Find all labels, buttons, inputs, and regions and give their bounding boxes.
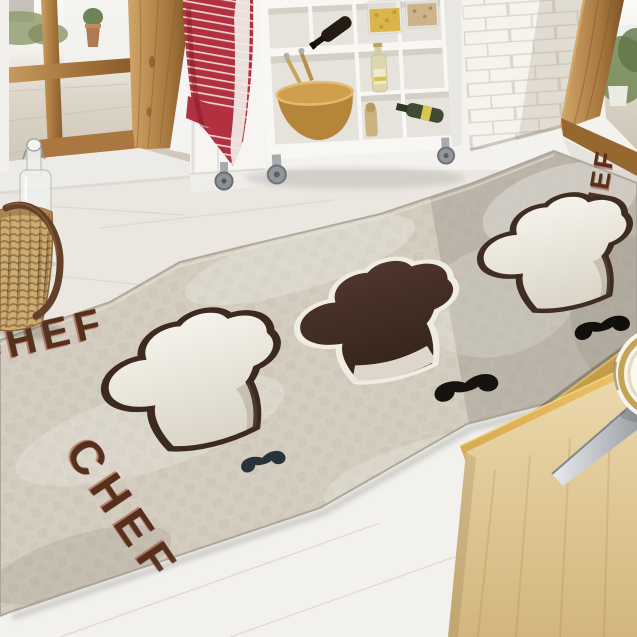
pasta-jar xyxy=(367,0,403,34)
swing-top-cap xyxy=(27,139,41,151)
plant-pot xyxy=(608,86,628,106)
potted-tree xyxy=(83,8,103,26)
wood-knot xyxy=(149,56,155,68)
wood-knot xyxy=(147,107,152,117)
terracotta-pot xyxy=(86,26,100,47)
kitchen-photo: CHEF CHEF CHEF xyxy=(0,0,637,637)
door-frame-left-edge xyxy=(0,0,9,172)
grain-jar xyxy=(405,0,440,29)
terracotta-pot-rim xyxy=(85,24,101,28)
